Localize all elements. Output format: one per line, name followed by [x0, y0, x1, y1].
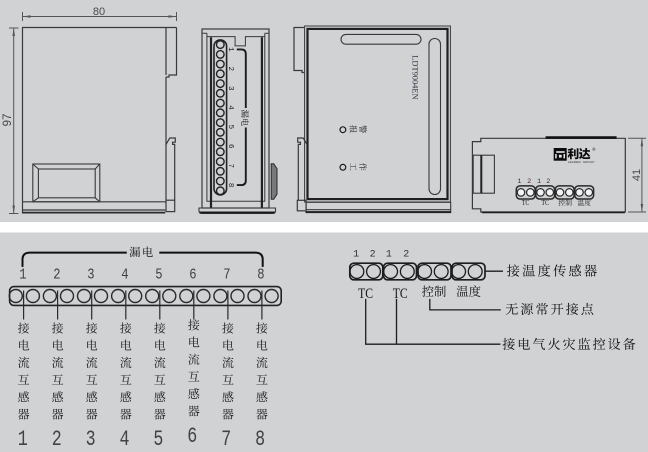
svg-text:7: 7 — [221, 427, 231, 452]
svg-text:8: 8 — [226, 183, 234, 188]
svg-text:2: 2 — [52, 427, 62, 452]
svg-text:4: 4 — [121, 267, 128, 283]
svg-text:2: 2 — [53, 267, 60, 283]
svg-text:7: 7 — [226, 163, 234, 168]
svg-text:1: 1 — [18, 427, 28, 452]
svg-text:1: 1 — [386, 250, 392, 261]
svg-text:6: 6 — [189, 267, 196, 283]
svg-text:1: 1 — [226, 47, 234, 52]
svg-text:2: 2 — [527, 178, 531, 186]
svg-text:41: 41 — [631, 169, 643, 181]
svg-text:1: 1 — [517, 178, 521, 186]
svg-text:TC: TC — [541, 198, 549, 207]
svg-text:5: 5 — [155, 267, 162, 283]
svg-text:8: 8 — [255, 427, 265, 452]
svg-text:6: 6 — [187, 424, 197, 449]
svg-text:3: 3 — [86, 427, 96, 452]
svg-text:97: 97 — [2, 114, 14, 127]
svg-text:3: 3 — [87, 267, 94, 283]
svg-text:5: 5 — [153, 427, 163, 452]
svg-text:4: 4 — [120, 427, 130, 452]
svg-text:2: 2 — [403, 250, 409, 261]
svg-text:1: 1 — [537, 178, 541, 186]
svg-text:TC: TC — [522, 198, 530, 207]
svg-text:1: 1 — [19, 267, 26, 283]
svg-text:4: 4 — [226, 105, 234, 110]
svg-text:5: 5 — [226, 125, 234, 130]
svg-text:LDT9004EN: LDT9004EN — [411, 55, 420, 99]
svg-text:1: 1 — [353, 250, 359, 261]
svg-text:2: 2 — [226, 67, 234, 72]
svg-text:2: 2 — [370, 250, 376, 261]
svg-text:2: 2 — [546, 178, 550, 186]
svg-text:7: 7 — [223, 267, 230, 283]
svg-text:3: 3 — [226, 86, 234, 91]
svg-text:8: 8 — [257, 267, 264, 283]
svg-text:6: 6 — [226, 144, 234, 149]
svg-text:80: 80 — [93, 6, 105, 18]
svg-text:LEADER GROUP: LEADER GROUP — [568, 160, 595, 164]
svg-text:TC: TC — [393, 285, 408, 302]
svg-text:TC: TC — [358, 285, 373, 302]
